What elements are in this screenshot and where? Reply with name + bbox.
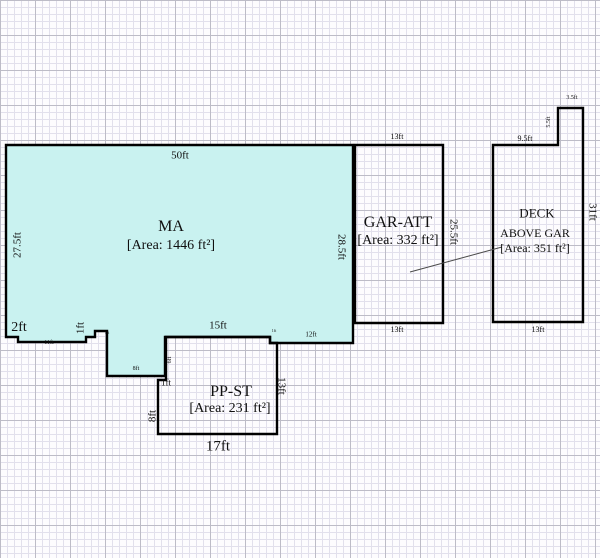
floorplan-drawing	[0, 0, 600, 558]
deck-room-shape[interactable]	[493, 108, 583, 322]
sketch-canvas: 50ft27.5ftMA[Area: 1446 ft²]2ft11ft1ft1f…	[0, 0, 600, 558]
gar-att-room-shape[interactable]	[355, 145, 443, 323]
deck-label-leader-line	[410, 247, 502, 272]
pp-st-room-shape[interactable]	[158, 337, 277, 434]
ma-room-shape[interactable]	[6, 145, 353, 376]
